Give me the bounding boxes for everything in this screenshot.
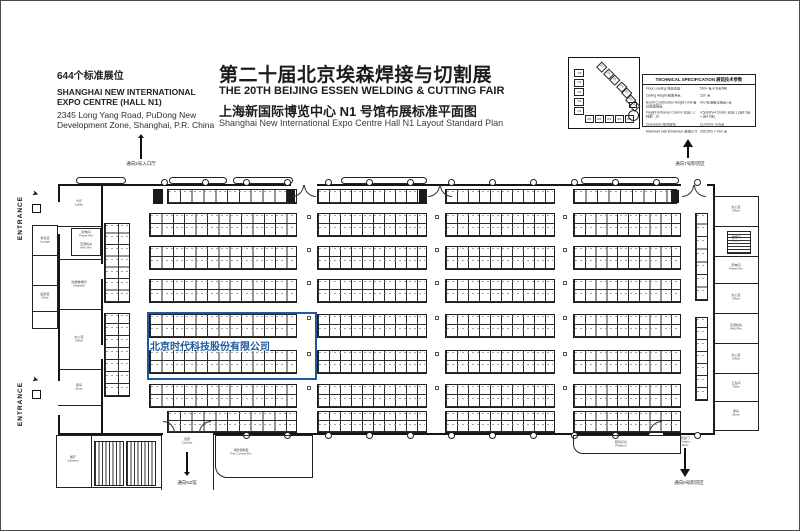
door-arc bbox=[292, 185, 304, 197]
booth-block bbox=[317, 350, 427, 374]
column-circle bbox=[653, 179, 660, 186]
interior-column bbox=[563, 215, 567, 219]
canopy bbox=[169, 177, 227, 184]
booth-numbers bbox=[575, 248, 679, 249]
booth-numbers bbox=[319, 281, 425, 282]
down-arrow-icon bbox=[684, 448, 687, 470]
booth-block bbox=[317, 279, 427, 303]
booth-block bbox=[317, 213, 427, 237]
room-divider bbox=[713, 313, 759, 314]
hall-wall bbox=[58, 184, 291, 186]
booth-numbers bbox=[447, 215, 553, 216]
interior-column bbox=[435, 316, 439, 320]
tiny-label: 卫生间 Toilet bbox=[706, 382, 766, 389]
door-square-icon bbox=[32, 204, 41, 213]
column-circle bbox=[571, 179, 578, 186]
booth-numbers bbox=[575, 424, 679, 425]
column-circle bbox=[407, 179, 414, 186]
floor-plan-page: 644个标准展位 SHANGHAI NEW INTERNATIONAL EXPO… bbox=[0, 0, 800, 531]
booth-numbers bbox=[447, 293, 553, 294]
room-divider bbox=[58, 309, 101, 310]
booth-numbers bbox=[319, 386, 425, 387]
booth-numbers bbox=[106, 375, 128, 376]
booth-numbers bbox=[447, 260, 553, 261]
booth-numbers bbox=[575, 293, 679, 294]
booth-block bbox=[445, 384, 555, 408]
column-circle bbox=[366, 179, 373, 186]
booth-numbers bbox=[169, 413, 295, 414]
up-arrow-icon bbox=[140, 138, 142, 159]
tiny-label: 库房 Store bbox=[706, 410, 766, 417]
booth-block bbox=[445, 279, 555, 303]
fire-cabinet bbox=[671, 190, 679, 203]
down-arrow-icon bbox=[186, 452, 188, 473]
booth-numbers bbox=[697, 215, 706, 216]
booth-block bbox=[317, 384, 427, 408]
column-circle bbox=[284, 179, 291, 186]
booth-numbers bbox=[575, 260, 679, 261]
room-divider bbox=[58, 405, 101, 406]
door-arc bbox=[428, 185, 440, 197]
interior-column bbox=[435, 352, 439, 356]
tiny-label: 通向2号入口厅 bbox=[111, 161, 171, 166]
booth-numbers bbox=[151, 227, 295, 228]
column-circle bbox=[407, 432, 414, 439]
booth-numbers bbox=[106, 271, 128, 272]
column-circle bbox=[448, 432, 455, 439]
booth-numbers bbox=[447, 328, 553, 329]
hall-wall bbox=[58, 415, 60, 435]
arrow-head-icon bbox=[683, 139, 693, 147]
tiny-label: 办公室 Office bbox=[706, 206, 766, 213]
booth-numbers bbox=[575, 215, 679, 216]
room-divider bbox=[58, 369, 101, 370]
booth-numbers bbox=[447, 386, 553, 387]
booth-numbers bbox=[319, 191, 425, 192]
interior-column bbox=[563, 316, 567, 320]
booth-numbers bbox=[151, 248, 295, 249]
booth-block bbox=[317, 411, 427, 433]
room-divider bbox=[713, 226, 759, 227]
room-divider bbox=[713, 283, 759, 284]
booth-numbers bbox=[151, 215, 295, 216]
booth-block bbox=[573, 213, 681, 237]
booth-strip bbox=[695, 213, 708, 301]
tiny-label: 办公室 Office bbox=[49, 336, 109, 343]
booth-numbers bbox=[447, 424, 553, 425]
booth-numbers bbox=[319, 424, 425, 425]
booth-numbers bbox=[697, 265, 706, 266]
booth-numbers bbox=[319, 316, 425, 317]
column-circle bbox=[366, 432, 373, 439]
column-circle bbox=[530, 432, 537, 439]
booth-numbers bbox=[319, 248, 425, 249]
interior-column bbox=[307, 386, 311, 390]
room-divider bbox=[58, 226, 101, 227]
tiny-label: 通向N2馆 bbox=[157, 480, 217, 485]
booth-numbers bbox=[319, 398, 425, 399]
tiny-label: 通向7号卸货区 bbox=[660, 161, 720, 166]
booth-numbers bbox=[151, 398, 295, 399]
booth-block bbox=[573, 411, 681, 433]
booth-block bbox=[573, 279, 681, 303]
booth-numbers bbox=[697, 343, 706, 344]
tiny-label: 库房 Store bbox=[49, 384, 109, 391]
booth-block bbox=[445, 213, 555, 237]
booth-numbers bbox=[106, 282, 128, 283]
booth-numbers bbox=[447, 413, 553, 414]
room-wall bbox=[101, 359, 103, 436]
tiny-label: 大厅 Lobby bbox=[49, 200, 109, 207]
booth-numbers bbox=[106, 293, 128, 294]
interior-column bbox=[307, 215, 311, 219]
door-arc bbox=[694, 185, 706, 197]
interior-column bbox=[563, 248, 567, 252]
booth-block bbox=[149, 384, 297, 408]
booth-block bbox=[317, 314, 427, 338]
tiny-label: 通向6号卸货区 bbox=[659, 480, 719, 485]
booth-numbers bbox=[575, 352, 679, 353]
booth-numbers bbox=[575, 281, 679, 282]
column-circle bbox=[612, 179, 619, 186]
booth-numbers bbox=[151, 281, 295, 282]
toilet-stalls bbox=[94, 441, 124, 486]
company-label: 北京时代科技股份有限公司 bbox=[150, 338, 270, 353]
room-divider bbox=[32, 255, 58, 256]
room-divider bbox=[713, 343, 759, 344]
arrow-head-icon bbox=[184, 472, 190, 476]
booth-numbers bbox=[697, 379, 706, 380]
tiny-label: 走廊 Corridor bbox=[157, 438, 217, 445]
booth-block bbox=[445, 411, 555, 433]
booth-numbers bbox=[106, 327, 128, 328]
booth-numbers bbox=[169, 191, 295, 192]
booth-numbers bbox=[319, 293, 425, 294]
room-wall bbox=[101, 184, 103, 264]
booth-numbers bbox=[697, 391, 706, 392]
booth-numbers bbox=[575, 386, 679, 387]
booth-block bbox=[445, 350, 555, 374]
booth-numbers bbox=[447, 191, 553, 192]
booth-numbers bbox=[106, 387, 128, 388]
tiny-label: 办公室 Office bbox=[706, 354, 766, 361]
interior-column bbox=[307, 248, 311, 252]
column-circle bbox=[243, 179, 250, 186]
tiny-label: 消防控制室 Fire Control Rm bbox=[211, 449, 271, 456]
booth-numbers bbox=[319, 260, 425, 261]
booth-numbers bbox=[151, 386, 295, 387]
booth-numbers bbox=[106, 339, 128, 340]
fire-cabinet bbox=[419, 190, 427, 203]
booth-numbers bbox=[575, 328, 679, 329]
booth-numbers bbox=[106, 225, 128, 226]
tiny-label: 办公室 Office bbox=[706, 294, 766, 301]
arrow-head-icon bbox=[680, 469, 690, 477]
booth-numbers bbox=[447, 248, 553, 249]
interior-column bbox=[435, 248, 439, 252]
interior-column bbox=[563, 386, 567, 390]
interior-column bbox=[435, 386, 439, 390]
column-circle bbox=[202, 179, 209, 186]
arrow-head-icon bbox=[138, 134, 144, 138]
booth-numbers bbox=[575, 191, 675, 192]
booth-block bbox=[445, 246, 555, 270]
booth-numbers bbox=[169, 424, 295, 425]
booth-numbers bbox=[697, 290, 706, 291]
up-arrow-icon bbox=[687, 146, 690, 158]
booth-block bbox=[573, 246, 681, 270]
rounded-room bbox=[215, 435, 313, 478]
booth-numbers bbox=[697, 278, 706, 279]
tiny-label: 餐厅 Canteen bbox=[43, 456, 103, 463]
door-arc bbox=[304, 185, 316, 197]
entrance-arrow-icon: ➤ bbox=[31, 374, 40, 384]
booth-numbers bbox=[151, 260, 295, 261]
door-arc bbox=[682, 185, 694, 197]
interior-column bbox=[435, 281, 439, 285]
booth-numbers bbox=[575, 227, 679, 228]
column-circle bbox=[489, 432, 496, 439]
booth-numbers bbox=[106, 315, 128, 316]
booth-numbers bbox=[151, 293, 295, 294]
room-divider bbox=[58, 259, 101, 260]
interior-column bbox=[563, 281, 567, 285]
booth-numbers bbox=[319, 328, 425, 329]
column-circle bbox=[530, 179, 537, 186]
booth-block bbox=[573, 384, 681, 408]
booth-numbers bbox=[319, 352, 425, 353]
booth-block bbox=[573, 314, 681, 338]
tiny-label: 配电间 Power Rm bbox=[706, 264, 766, 271]
door-square-icon bbox=[32, 390, 41, 399]
booth-block bbox=[317, 246, 427, 270]
toilet-stalls bbox=[126, 441, 156, 486]
booth-numbers bbox=[697, 367, 706, 368]
booth-numbers bbox=[447, 352, 553, 353]
booth-numbers bbox=[697, 355, 706, 356]
booth-numbers bbox=[697, 227, 706, 228]
booth-numbers bbox=[106, 351, 128, 352]
booth-numbers bbox=[447, 364, 553, 365]
booth-numbers bbox=[575, 413, 679, 414]
tiny-label: 卸货平台 Platform bbox=[591, 441, 651, 448]
booth-numbers bbox=[697, 240, 706, 241]
booth-numbers bbox=[319, 215, 425, 216]
room-divider bbox=[713, 256, 759, 257]
hall-plan-drawing: 通向2号入口厅通向7号卸货区通向N2馆通向6号卸货区走廊 Corridor货运门… bbox=[1, 1, 799, 530]
booth-numbers bbox=[319, 227, 425, 228]
column-circle bbox=[161, 179, 168, 186]
booth-numbers bbox=[447, 316, 553, 317]
booth-block bbox=[149, 213, 297, 237]
room-divider bbox=[713, 401, 759, 402]
canopy bbox=[76, 177, 126, 184]
booth-block bbox=[149, 279, 297, 303]
booth-numbers bbox=[697, 331, 706, 332]
entrance-label: ENTRANCE bbox=[17, 376, 27, 432]
door-arc bbox=[440, 185, 452, 197]
interior-column bbox=[563, 352, 567, 356]
entrance-arrow-icon: ➤ bbox=[31, 188, 40, 198]
booth-numbers bbox=[447, 398, 553, 399]
booth-numbers bbox=[697, 253, 706, 254]
hall-wall bbox=[58, 234, 60, 381]
booth-numbers bbox=[447, 281, 553, 282]
booth-numbers bbox=[447, 227, 553, 228]
tiny-label: 医务室 Clinic bbox=[15, 293, 75, 300]
column-circle bbox=[489, 179, 496, 186]
booth-block bbox=[167, 411, 297, 433]
tiny-label: 防烟楼梯间 Stairwell bbox=[49, 281, 109, 288]
booth-numbers bbox=[106, 259, 128, 260]
booth-numbers bbox=[575, 316, 679, 317]
column-circle bbox=[325, 179, 332, 186]
canopy bbox=[341, 177, 427, 184]
fire-cabinet bbox=[153, 189, 163, 204]
booth-block bbox=[445, 314, 555, 338]
booth-block bbox=[149, 246, 297, 270]
column-circle bbox=[325, 432, 332, 439]
interior-column bbox=[307, 281, 311, 285]
booth-block bbox=[573, 350, 681, 374]
tiny-label: 空调机房 AHU Rm bbox=[706, 324, 766, 331]
entrance-marker: ENTRANCE➤ bbox=[16, 374, 48, 432]
canopy bbox=[581, 177, 679, 184]
booth-numbers bbox=[319, 364, 425, 365]
tiny-label: 楼梯间 Stairs bbox=[706, 236, 766, 243]
booth-numbers bbox=[575, 398, 679, 399]
room-divider bbox=[713, 373, 759, 374]
booth-numbers bbox=[106, 363, 128, 364]
tiny-label: 货运门 Freight Door bbox=[655, 437, 715, 448]
room-divider bbox=[32, 311, 58, 312]
interior-column bbox=[435, 215, 439, 219]
tiny-label: 休息室 Lounge bbox=[15, 237, 75, 244]
booth-numbers bbox=[697, 319, 706, 320]
booth-numbers bbox=[319, 413, 425, 414]
booth-numbers bbox=[575, 364, 679, 365]
